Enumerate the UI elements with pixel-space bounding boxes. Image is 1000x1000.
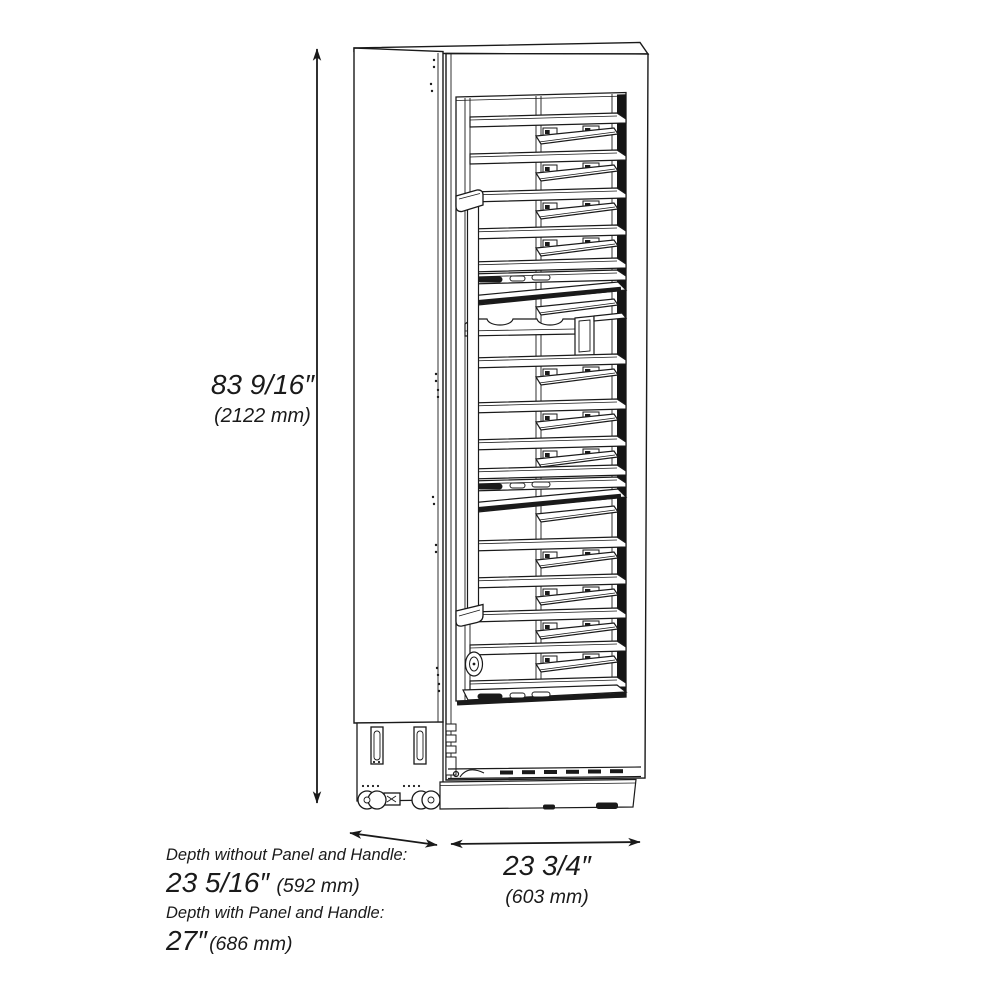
depth-with-inches: 27″: [166, 925, 207, 956]
depth-notes: Depth without Panel and Handle: 23 5/16″…: [166, 844, 407, 960]
depth-without-inches: 23 5/16″: [166, 867, 269, 898]
width-inches: 23 3/4″: [452, 851, 642, 881]
depth-without-label: Depth without Panel and Handle:: [166, 844, 407, 867]
depth-without-mm: (592 mm): [276, 875, 359, 897]
depth-with-mm: (686 mm): [209, 933, 292, 955]
height-inches: 83 9/16″: [150, 370, 375, 400]
height-dimension-label: 83 9/16″ (2122 mm): [150, 370, 375, 428]
width-mm: (603 mm): [452, 885, 642, 909]
diagram-canvas: 83 9/16″ (2122 mm) Depth without Panel a…: [0, 0, 1000, 1000]
wine-cooler-line-drawing: [0, 0, 1000, 1000]
depth-without-value: 23 5/16″(592 mm): [166, 867, 407, 902]
depth-with-value: 27″(686 mm): [166, 925, 407, 960]
width-dimension-label: 23 3/4″ (603 mm): [452, 851, 642, 909]
width-arrow: [451, 842, 640, 844]
handle-bar: [468, 204, 479, 615]
glass-side-dark-band: [617, 94, 626, 697]
depth-with-label: Depth with Panel and Handle:: [166, 902, 407, 925]
height-mm: (2122 mm): [150, 404, 375, 428]
